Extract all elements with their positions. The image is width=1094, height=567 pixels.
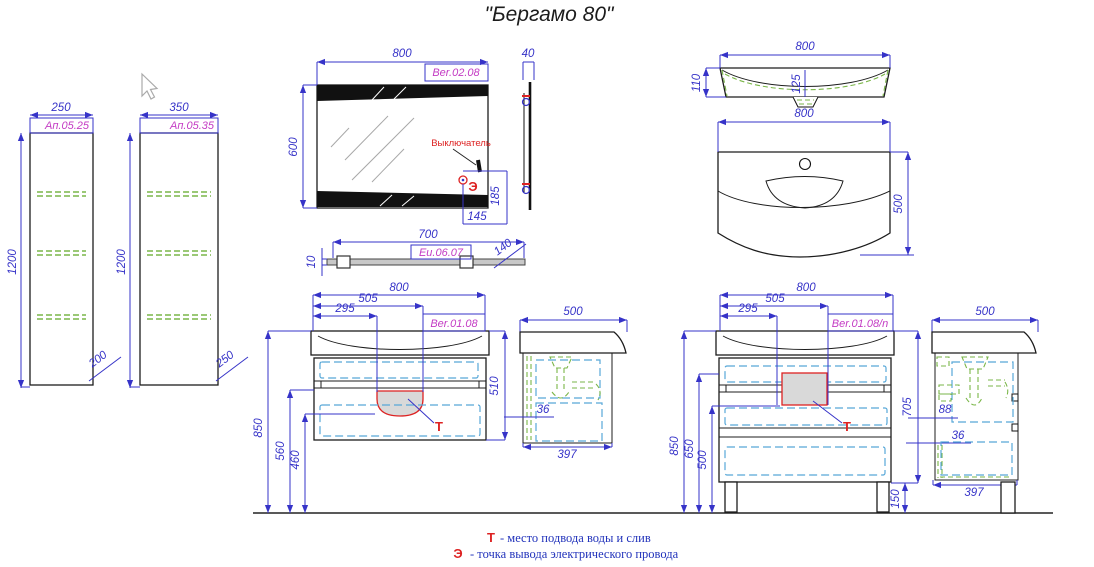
sink-plan-width-dim: 800 [794,108,814,120]
vanity-floor-500-dim: 500 [697,450,709,470]
vanity-floor-side-width-dim: 500 [975,306,995,318]
vanity-floor-850-dim: 850 [669,436,681,456]
vanity-wall-460-dim: 460 [290,450,302,470]
sink-plan-depth-dim: 500 [893,194,905,214]
mirror-label: Ber.02.08 [432,67,480,79]
basin-clearance-outline [952,362,1013,422]
legend: Т - место подвода воды и слив Э - точка … [453,530,678,561]
water-supply-zone [782,373,827,405]
leg-right [877,482,889,512]
tall-cabinet-small-view: 250 Ап.05.25 1200 200 [7,102,121,388]
vanity-floor-front-view: Т 800 505 295 Ber.01.08/n 850 650 500 70… [669,282,918,513]
vanity-floor-width-dim: 800 [796,282,816,294]
shelf-label: Eu.06.07 [419,247,464,259]
switch-mark [478,160,480,172]
vanity-floor-label: Ber.01.08/n [832,318,888,330]
mirror-height-dim: 600 [288,137,300,157]
t-symbol: Т [843,419,851,434]
cabinet-small-width-dim: 250 [50,102,71,114]
vanity-wall-505-dim: 505 [358,293,378,305]
electric-symbol: Э [468,179,477,194]
cabinet-large-label: Ап.05.35 [169,120,215,132]
vanity-floor-705-dim: 705 [902,397,914,417]
switch-offset-y-dim: 185 [490,186,502,206]
page-title: "Бергамо 80" [484,3,615,26]
vanity-wall-label: Ber.01.08 [430,318,478,330]
drawing-sheet: "Бергамо 80" 250 Ап.05.25 1200 200 350 [0,0,1094,567]
vanity-wall-front-view: Т 800 505 295 Ber.01.08 510 850 560 460 [253,282,505,513]
vanity-wall-850-dim: 850 [253,418,265,438]
legend-e-text: - точка вывода электрического провода [470,547,679,561]
shelf-view: 700 Eu.06.07 10 140 [306,229,526,276]
water-supply-zone [377,391,423,416]
sink-profile-view: 800 110 125 [691,41,890,107]
switch-offset-x-dim: 145 [467,211,487,223]
t-symbol: Т [435,419,443,434]
vanity-wall-295-dim: 295 [334,303,355,315]
vanity-floor-gap-dim: 36 [952,430,965,442]
sink-drain [793,97,818,107]
vanity-floor-505-dim: 505 [765,293,785,305]
faucet-hole [800,159,811,170]
vanity-floor-295-dim: 295 [737,303,758,315]
mirror-front-view: 800 Ber.02.08 600 Выключатель Э 185 145 [288,48,507,224]
vanity-floor-650-dim: 650 [684,439,696,459]
plumbing-dashed [550,357,600,400]
shelf-thickness-dim: 10 [306,255,318,268]
vanity-wall-side-view: 500 36 397 [504,306,627,461]
switch-annotation: Выключатель [431,138,491,149]
leg-side [1001,482,1015,513]
vanity-floor-side-depth-dim: 397 [964,487,984,499]
mirror-depth-dim: 40 [522,48,535,60]
vanity-wall-560-dim: 560 [275,441,287,461]
vanity-floor-leg-dim: 150 [890,489,902,509]
sink-plan-view: 800 500 [718,108,914,257]
vanity-floor-side-view: 500 88 36 397 [906,306,1038,513]
legend-e-symbol: Э [453,546,462,561]
shelf-bracket-left [337,256,350,268]
shelf-length-dim: 700 [418,229,438,241]
mirror-side-view: 40 [522,48,535,210]
vanity-wall-height-dim: 510 [489,376,501,396]
mouse-cursor-icon [142,74,157,99]
tall-cabinet-large-view: 350 Ап.05.35 1200 250 [116,102,248,388]
legend-t-symbol: Т [487,530,495,545]
vanity-wall-side-depth-dim: 397 [557,449,577,461]
vanity-wall-side-width-dim: 500 [563,306,583,318]
legend-t-text: - место подвода воды и слив [500,531,651,545]
vanity-wall-gap-dim: 36 [537,404,550,416]
mirror-width-dim: 800 [392,48,412,60]
cabinet-small-height-dim: 1200 [7,249,19,275]
vanity-wall-width-dim: 800 [389,282,409,294]
sink-width-dim: 800 [795,41,815,53]
leg-left [725,482,737,512]
drawer-outline [536,360,600,398]
technical-drawing: "Бергамо 80" 250 Ап.05.25 1200 200 350 [0,0,1094,567]
vanity-floor-88-dim: 88 [939,404,952,416]
cabinet-small-label: Ап.05.25 [44,120,90,132]
drawer-outline [941,442,1012,475]
sink-profile-height-dim: 110 [691,73,703,92]
cabinet-large-height-dim: 1200 [116,249,128,275]
cabinet-large-width-dim: 350 [169,102,189,114]
sink-basin-depth-dim: 125 [791,74,803,94]
